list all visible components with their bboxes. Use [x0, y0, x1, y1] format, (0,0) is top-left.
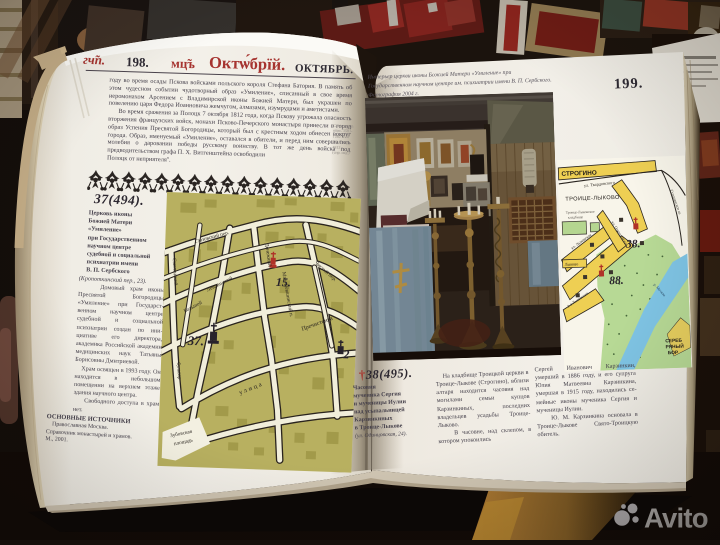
- svg-text:38.: 38.: [625, 238, 641, 251]
- svg-text:37.: 37.: [187, 333, 205, 349]
- svg-text:БОР: БОР: [668, 350, 679, 356]
- svg-text:кладбище: кладбище: [568, 215, 584, 220]
- svg-text:Avito: Avito: [644, 503, 708, 534]
- svg-text:88.: 88.: [609, 275, 624, 287]
- svg-text:СТРОГИНО: СТРОГИНО: [561, 170, 597, 178]
- svg-text:бульвар: бульвар: [175, 362, 183, 380]
- svg-text:СЕРЕБ: СЕРЕБ: [665, 338, 682, 345]
- svg-text:Лыково: Лыково: [565, 261, 579, 266]
